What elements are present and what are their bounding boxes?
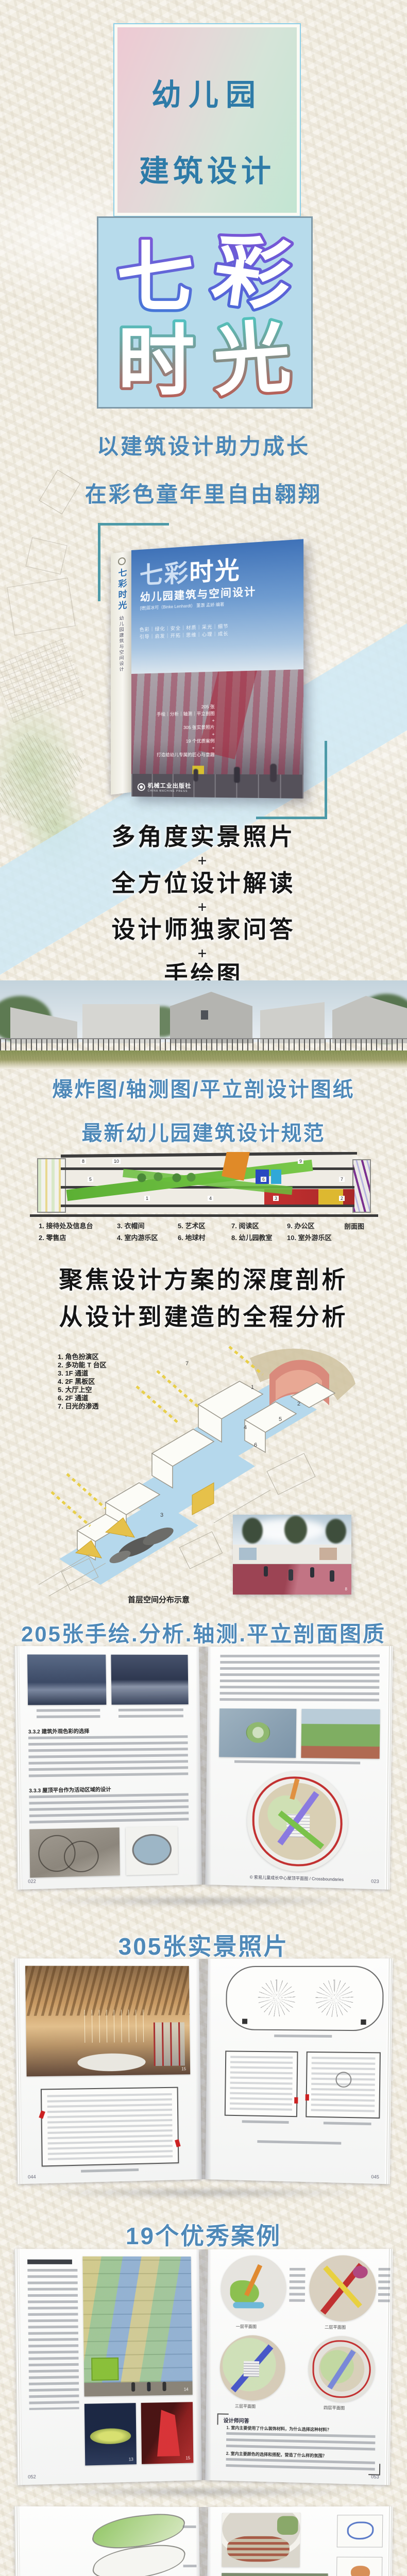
xsec-room-tag: 2 (339, 1196, 345, 1201)
legend-item: 8. 幼儿园教室 (231, 1232, 287, 1242)
inset-photo-number: 8 (345, 1587, 347, 1591)
s2r-caption (274, 2035, 332, 2040)
cover-feat-4: 19 个优质案例 (135, 738, 215, 745)
spread4-left-page: 屋顶活动平台 结构分解 114 (14, 2506, 202, 2576)
plan-red-mark (39, 2110, 45, 2119)
s3r-legend (378, 2268, 391, 2305)
s3r-plan2-caption: 二层平面图 (325, 2325, 346, 2330)
s1-heading-332: 3.3.2 建筑外观色彩的选择 (28, 1727, 90, 1735)
s3-heading-bar (27, 2260, 72, 2264)
s3r-plan4-caption: 四层平面图 (324, 2405, 345, 2411)
axon-legend: 1. 角色扮演区 2. 多功能 T 台区 3. 1F 通道 4. 2F 黑板区 … (58, 1353, 107, 1411)
hero-char-3: 时 (117, 318, 195, 404)
hero-title-box: 七 彩 时 光 (97, 216, 313, 409)
photo-fence (0, 1038, 407, 1052)
heading-205: 205张手绘.分析.轴测.平立剖面图质 (0, 1617, 407, 1648)
photo-house (82, 1004, 160, 1043)
sketch-box-icon (7, 578, 75, 636)
cover-feat-5: 打造给幼儿专属的匠心与意趣 (135, 752, 215, 758)
axon-num: 1 (251, 1384, 254, 1391)
s1-caption-lines (118, 1708, 183, 1719)
s1-photo (27, 1654, 106, 1705)
red-door-frames (154, 2022, 185, 2066)
axon-num: 3 (160, 1512, 163, 1518)
aerial-garden-rows (227, 2536, 290, 2562)
feature-stack-item-3: 设计师独家问答 (0, 911, 407, 945)
legend-item: 9. 办公区 (287, 1221, 338, 1230)
heading-focus: 聚焦设计方案的深度剖析 (0, 1261, 407, 1295)
s1r-plan-caption: © 索易儿童成长中心屋顶平面图 / Crossboundaries (205, 1873, 389, 1884)
s2r-caption (257, 2140, 341, 2147)
cross-section-diagram: 1 4 3 2 5 6 7 8 9 10 (30, 1152, 378, 1217)
cover-publisher: 机械工业出版社 CHINA MACHINE PRESS (138, 781, 192, 793)
axon-legend-item: 6. 2F 通道 (58, 1394, 107, 1402)
axon-num: 4 (244, 1425, 247, 1431)
s1-body-lines (28, 1735, 188, 1780)
hero-char-2: 彩 (208, 225, 296, 321)
axon-legend-item: 3. 1F 通道 (58, 1369, 107, 1378)
qa-answer-lines (226, 2432, 376, 2451)
plan-lines (230, 2056, 293, 2111)
s3-photo-number: 14 (184, 2387, 189, 2392)
photo-fade (0, 1060, 407, 1069)
s1r-body-lines (219, 1654, 380, 1703)
cover-title-part2: 时光 (189, 556, 241, 586)
publisher-logo-icon (118, 557, 126, 566)
plan-blue-strip (233, 2302, 264, 2308)
s1-body-lines (29, 1793, 189, 1825)
legend-item: 7. 阅读区 (231, 1221, 287, 1230)
tagline-2: 在彩色童年里自由翱翔 (0, 477, 407, 509)
xsec-room-tag: 3 (273, 1196, 279, 1201)
cover-feat-plus: + (135, 744, 215, 752)
badge-line-2: 建筑设计 (114, 147, 300, 190)
xsec-room-tag: 9 (298, 1159, 303, 1164)
feature-stack-item-2: 全方位设计解读 (0, 865, 407, 899)
heading-drawings: 爆炸图/轴测图/平立剖设计图纸 (0, 1073, 407, 1103)
xsec-ground (30, 1214, 378, 1217)
s4r-photo-pink-field (220, 2573, 328, 2576)
hero-char-1: 七 (116, 234, 194, 321)
xsec-room-tag: 10 (112, 1159, 121, 1164)
s3-photo-night: 13 (84, 2403, 137, 2465)
axon-legend-item: 7. 日光的渗透 (58, 1402, 107, 1411)
cover-feat-3: 305 张实景照片 (135, 724, 215, 732)
s4-axon-labels (183, 2526, 196, 2530)
xsec-room-tag: 1 (144, 1196, 150, 1201)
inset-mural (319, 1548, 337, 1560)
field-trees (222, 2573, 328, 2576)
cover-feat-plus: + (135, 731, 215, 738)
cover-photo: 205 张 手绘｜分析｜轴测｜平立剖图 + 305 张实景照片 + 19 个优质… (131, 669, 303, 799)
sketch-box-icon (25, 537, 67, 574)
s1r-caption-lines (234, 1760, 360, 1767)
axon-legend-item: 2. 多功能 T 台区 (58, 1361, 107, 1369)
inset-figure (289, 1569, 293, 1581)
spread1-right-page: © 索易儿童成长中心屋顶平面图 / Crossboundaries 023 (205, 1646, 393, 1890)
xsec-caption: 剖面图 (344, 1221, 364, 1231)
spine-title: 七彩时光 (115, 567, 128, 612)
s1-page-number-left: 022 (28, 1878, 36, 1884)
spread-gutter (196, 1959, 211, 2179)
axon-num: 2 (297, 1401, 300, 1407)
publisher-logo-icon (138, 783, 145, 791)
hero-title-art: 七 彩 时 光 (98, 218, 311, 407)
aerial-round-building (246, 1722, 270, 1743)
feature-stack-item-1: 多角度实景照片 (0, 818, 407, 852)
s3-page-number-right: 053 (371, 2474, 379, 2480)
s3-photo-red: 15 (141, 2402, 194, 2464)
plan-black-node (242, 2019, 247, 2024)
spread-gutter (196, 2249, 211, 2480)
xsec-room-tag: 7 (339, 1177, 345, 1182)
facade-green-cube (91, 2358, 119, 2381)
book-spread-3: 14 13 15 052 (18, 2249, 389, 2498)
book-spread-2: 15 044 (18, 1959, 389, 2198)
hanging-lights (84, 2009, 148, 2042)
plan-black-node (361, 2020, 366, 2025)
cover-feat-2: 手绘｜分析｜轴测｜平立剖图 (135, 710, 215, 718)
spread-gutter (196, 2507, 211, 2576)
s2r-caption (242, 2120, 289, 2126)
photo-house-window (201, 1010, 208, 1020)
heading-standard: 最新幼儿园建筑设计规范 (0, 1116, 407, 1146)
xsec-legend-row-2: 2. 零售店 4. 室内游乐区 6. 地球村 8. 幼儿园教室 10. 室外游乐… (39, 1232, 338, 1242)
mini-plan-blue (347, 2521, 374, 2539)
s3r-plan-circle-2 (309, 2255, 377, 2321)
hero-char-4: 光 (210, 313, 293, 405)
net-curve (64, 1840, 99, 1872)
s3-photo-facade: 14 (82, 2257, 192, 2397)
aerial-green (277, 2516, 298, 2535)
publisher-name: 机械工业出版社 (148, 781, 192, 790)
spread1-left-page: 3.3.2 建筑外观色彩的选择 3.3.3 屋顶平台作为活动区域的设计 022 (14, 1646, 202, 1890)
spread3-left-page: 14 13 15 052 (14, 2249, 202, 2485)
inset-figure (330, 1570, 334, 1582)
starburst-icon (315, 1979, 354, 2017)
xsec-slab (61, 1205, 354, 1207)
cover-photo-figure (234, 767, 240, 783)
cover-title-part1: 七彩 (140, 559, 189, 589)
xsec-room-tag: 8 (80, 1159, 86, 1164)
axon-num: 5 (279, 1416, 282, 1422)
s1-photo-net (29, 1827, 120, 1877)
legend-item: 6. 地球村 (178, 1232, 231, 1242)
plan-red-mark (175, 2139, 180, 2147)
axon-legend-item: 5. 大厅上空 (58, 1386, 107, 1394)
s3r-plan-circle-1 (221, 2256, 286, 2321)
legend-item: 2. 零售店 (39, 1232, 117, 1242)
xsec-room-tag: 6 (261, 1177, 266, 1182)
plan-magenta-patch (353, 2266, 368, 2278)
s2-floor-plan (41, 2087, 179, 2167)
cover-photo-figure (270, 764, 277, 782)
inset-figure (264, 1566, 268, 1577)
s1r-photo-aerial (219, 1708, 296, 1758)
xsec-room-tag: 4 (208, 1196, 213, 1201)
s1-caption-lines (37, 1709, 100, 1720)
s1-heading-333: 3.3.3 屋顶平台作为活动区域的设计 (29, 1785, 111, 1794)
s3-photo-number: 13 (129, 2457, 133, 2462)
s3r-plan1-caption: 一层平面图 (236, 2324, 257, 2329)
s1-photo-skylight (126, 1826, 178, 1875)
s3-page-number-left: 052 (28, 2474, 36, 2480)
axon-legend-item: 1. 角色扮演区 (58, 1353, 107, 1361)
s3r-plan-circle-4 (308, 2336, 376, 2403)
s3r-plan3-caption: 三层平面图 (235, 2403, 256, 2410)
kindergarten-photo (0, 980, 407, 1069)
spread3-right-page: 一层平面图 二层平面图 三层平面图 四层平面图 设计师问答 1. 室内主要使用了… (205, 2249, 393, 2485)
s2r-plan-room (225, 2050, 298, 2117)
qa-answer-lines (226, 2458, 375, 2473)
axon-caption: 首层空间分布示意 (128, 1594, 190, 1605)
plan-red-mark (306, 2094, 309, 2100)
qa-heading: 设计师问答 (223, 2416, 249, 2425)
axon-num: 7 (185, 1361, 189, 1367)
inset-mural (239, 1548, 257, 1560)
facade-figure (162, 2382, 166, 2391)
s1r-roof-plan (247, 1771, 349, 1873)
cover-photo-figure (193, 769, 198, 782)
white-counter (77, 2053, 146, 2072)
legend-item: 4. 室内游乐区 (117, 1232, 178, 1242)
heading-19: 19个优秀案例 (0, 2217, 407, 2251)
xsec-trees (135, 1171, 197, 1184)
legend-item: 3. 衣帽间 (117, 1221, 178, 1230)
heading-305: 305张实景照片 (0, 1928, 407, 1962)
s3r-qa-block: 设计师问答 1. 室内主要使用了什么装饰材料，为什么选择这种材料？ 2. 室内主… (216, 2413, 381, 2475)
book-cover-shot: 七彩时光 幼儿园建筑与空间设计 七彩时光 幼儿园建筑与空间设计 [德]蓝冰可（B… (111, 545, 312, 813)
s1r-photo-roof (301, 1709, 380, 1759)
s2-page-number-left: 044 (28, 2174, 36, 2180)
book-front-cover: 七彩时光 幼儿园建筑与空间设计 [德]蓝冰可（Binke Lenhardt） 董… (131, 539, 303, 799)
cover-feature-block: 205 张 手绘｜分析｜轴测｜平立剖图 + 305 张实景照片 + 19 个优质… (135, 703, 215, 758)
xsec-room-tag: 5 (88, 1177, 93, 1182)
legend-item: 5. 艺术区 (178, 1221, 231, 1230)
s4-axon-labels (183, 2565, 197, 2569)
axon-legend-item: 4. 2F 黑板区 (58, 1378, 107, 1386)
facade-figure (131, 2382, 135, 2392)
axon-inset-photo: 8 (233, 1515, 351, 1595)
s3-photo-number: 15 (185, 2455, 190, 2460)
inset-tree (242, 1518, 263, 1544)
mini-plan-orange (351, 2566, 370, 2576)
legend-item: 10. 室外游乐区 (287, 1232, 338, 1242)
s3-text-column (27, 2269, 79, 2410)
inset-tree (326, 1519, 346, 1544)
ceiling-slats (25, 1966, 190, 2016)
inset-tree (284, 1516, 307, 1544)
publisher-name-en: CHINA MACHINE PRESS (148, 789, 192, 793)
s3r-legend (289, 2268, 305, 2304)
book-spread-1: 3.3.2 建筑外观色彩的选择 3.3.3 屋顶平台作为活动区域的设计 022 (18, 1647, 389, 1907)
tagline-1: 以建筑设计助力成长 (0, 429, 407, 461)
xsec-right-tower (352, 1159, 371, 1213)
s2-page-number-right: 045 (371, 2174, 379, 2180)
book-spine: 七彩时光 幼儿园建筑与空间设计 (111, 551, 132, 794)
s2-caption (81, 2168, 139, 2175)
s3r-plan-circle-3 (219, 2335, 285, 2401)
night-glow-building (90, 2428, 131, 2445)
s4r-mini-plan (337, 2515, 383, 2547)
heading-process: 从设计到建造的全程分析 (0, 1298, 407, 1332)
axon-num: 6 (254, 1442, 257, 1448)
badge-line-1: 幼儿园 (114, 71, 300, 114)
starburst-icon (258, 1979, 296, 2017)
plan-red-mark (294, 2097, 298, 2104)
skylight-oval (132, 1834, 172, 1866)
s2-photo-number: 15 (181, 2066, 186, 2071)
plan-lines (47, 2093, 173, 2160)
s1-page-number-right: 023 (371, 1878, 379, 1884)
spread-gutter (196, 1647, 211, 1885)
s2r-plan-oval (226, 1966, 384, 2031)
spread2-right-page: 045 (205, 1958, 393, 2184)
spread4-right-page: 中庭游乐区 入口门廊区 115 (205, 2506, 393, 2576)
facade-figure (147, 2382, 150, 2391)
plan-grid-square (244, 2361, 260, 2377)
xsec-cyan-block (271, 1170, 281, 1184)
s4r-photo-aerial (222, 2513, 300, 2567)
spine-subtitle: 幼儿园建筑与空间设计 (118, 615, 125, 673)
badge-box: 幼儿园 建筑设计 (113, 23, 301, 217)
red-wedge (157, 2410, 180, 2456)
product-detail-page: 幼儿园 建筑设计 七 彩 时 光 以建筑设计助力成长 在彩色童年里自由翱翔 (0, 0, 407, 2576)
book-spread-4: 屋顶活动平台 结构分解 114 (18, 2507, 389, 2576)
s2r-caption (324, 2122, 371, 2127)
s1-photo (111, 1655, 188, 1705)
inset-figure (310, 1567, 314, 1578)
s4r-mini-plan (336, 2557, 383, 2576)
facade-ground (84, 2381, 192, 2396)
s2r-plan-room (306, 2052, 381, 2119)
xsec-legend-row-1: 1. 接待处及信息台 3. 衣帽间 5. 艺术区 7. 阅读区 9. 办公区 (39, 1221, 338, 1230)
spread2-left-page: 15 044 (14, 1958, 202, 2184)
legend-item: 1. 接待处及信息台 (39, 1221, 117, 1230)
s2-photo-interior: 15 (25, 1966, 190, 2077)
